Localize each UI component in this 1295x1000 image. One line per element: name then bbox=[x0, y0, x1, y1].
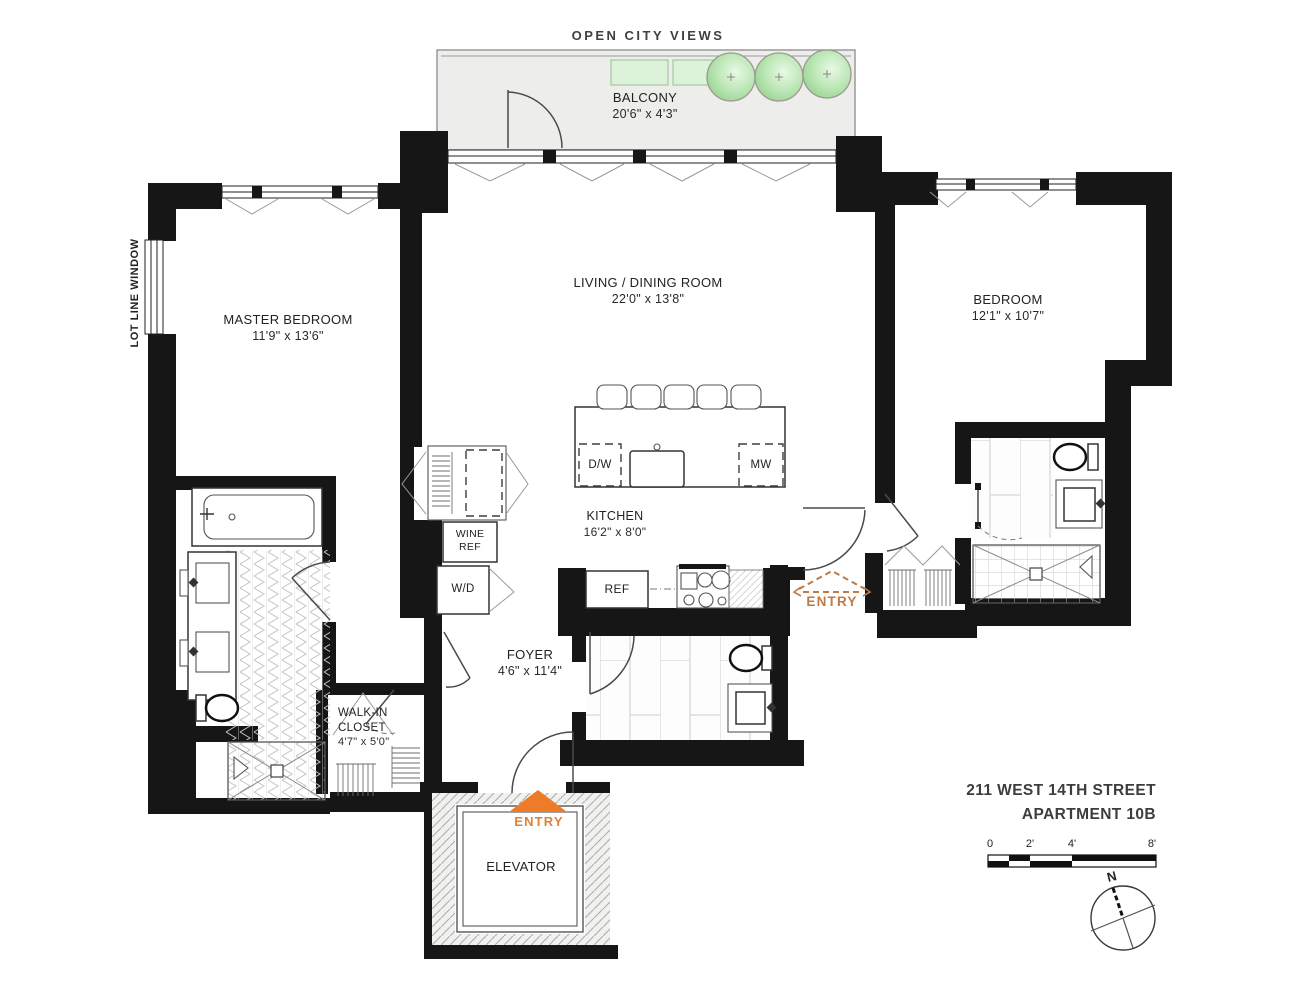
walk-in-closet-label: WALK-IN CLOSET 4'7" x 5'0" bbox=[338, 706, 422, 750]
window-living bbox=[448, 150, 836, 181]
window-lot-line bbox=[145, 240, 163, 334]
side-entry-door bbox=[803, 508, 865, 570]
window-bedroom bbox=[930, 179, 1076, 207]
toilet bbox=[730, 645, 772, 671]
kitchen-label: KITCHEN 16'2" x 8'0" bbox=[584, 508, 647, 540]
scale-tick-4: 4' bbox=[1068, 838, 1076, 850]
hall-closet bbox=[885, 546, 960, 606]
bar-stool bbox=[697, 385, 727, 409]
burner bbox=[698, 573, 712, 587]
shower bbox=[973, 545, 1100, 603]
bar-stool bbox=[664, 385, 694, 409]
dw-label: D/W bbox=[588, 459, 611, 472]
bar-stool bbox=[597, 385, 627, 409]
shower-master bbox=[228, 742, 325, 800]
toilet bbox=[1054, 444, 1098, 470]
tree-icon bbox=[707, 53, 755, 101]
master-bedroom-label: MASTER BEDROOM 11'9" x 13'6" bbox=[223, 312, 352, 344]
ref-label: REF bbox=[605, 583, 630, 596]
burner bbox=[684, 595, 694, 605]
burner bbox=[712, 571, 730, 589]
bathtub bbox=[192, 488, 322, 546]
planter bbox=[611, 60, 668, 85]
bar-stool bbox=[731, 385, 761, 409]
island-sink bbox=[630, 444, 684, 487]
wine-ref-label: WINE REF bbox=[449, 528, 491, 554]
scale-tick-2: 2' bbox=[1026, 838, 1034, 850]
scale-tick-0: 0 bbox=[987, 838, 993, 850]
master-bath-floor bbox=[225, 550, 330, 740]
washer-dryer-box bbox=[437, 566, 514, 614]
tree-icon bbox=[803, 50, 851, 98]
bedroom-bath bbox=[971, 438, 1105, 603]
window-master bbox=[222, 186, 378, 214]
bedroom-label: BEDROOM 12'1" x 10'7" bbox=[972, 292, 1044, 324]
vanity-double-sink bbox=[180, 552, 236, 700]
stove bbox=[677, 564, 730, 608]
living-dining-label: LIVING / DINING ROOM 22'0" x 13'8" bbox=[573, 275, 722, 307]
address-line2: APARTMENT 10B bbox=[1022, 806, 1156, 824]
scale-bar bbox=[988, 855, 1156, 867]
sink bbox=[1056, 480, 1105, 528]
compass bbox=[1091, 886, 1155, 950]
corridor-foyer-door bbox=[444, 632, 470, 687]
corridor-closet bbox=[402, 446, 528, 520]
floor-plan-graphics bbox=[0, 0, 1295, 1000]
sink bbox=[728, 684, 776, 732]
open-city-views-label: OPEN CITY VIEWS bbox=[572, 28, 725, 44]
lot-line-window-label: LOT LINE WINDOW bbox=[127, 283, 143, 293]
side-entry-marker bbox=[794, 571, 870, 596]
address-line1: 211 WEST 14TH STREET bbox=[966, 782, 1156, 800]
tree-icon bbox=[755, 53, 803, 101]
foyer-label: FOYER 4'6" x 11'4" bbox=[498, 647, 562, 679]
floor-plan: OPEN CITY VIEWS BALCONY 20'6" x 4'3" LOT… bbox=[0, 0, 1295, 1000]
wd-label: W/D bbox=[451, 583, 474, 596]
balcony-label: BALCONY 20'6" x 4'3" bbox=[612, 90, 677, 122]
burner bbox=[699, 593, 713, 607]
hall-bath bbox=[586, 632, 776, 740]
bar-stool bbox=[631, 385, 661, 409]
scale-tick-8: 8' bbox=[1148, 838, 1156, 850]
main-entry-label: ENTRY bbox=[514, 814, 564, 830]
burner bbox=[718, 597, 726, 605]
toilet bbox=[196, 695, 238, 721]
elevator-label: ELEVATOR bbox=[486, 859, 556, 875]
mw-label: MW bbox=[750, 459, 771, 472]
side-entry-label: ENTRY bbox=[806, 594, 857, 610]
